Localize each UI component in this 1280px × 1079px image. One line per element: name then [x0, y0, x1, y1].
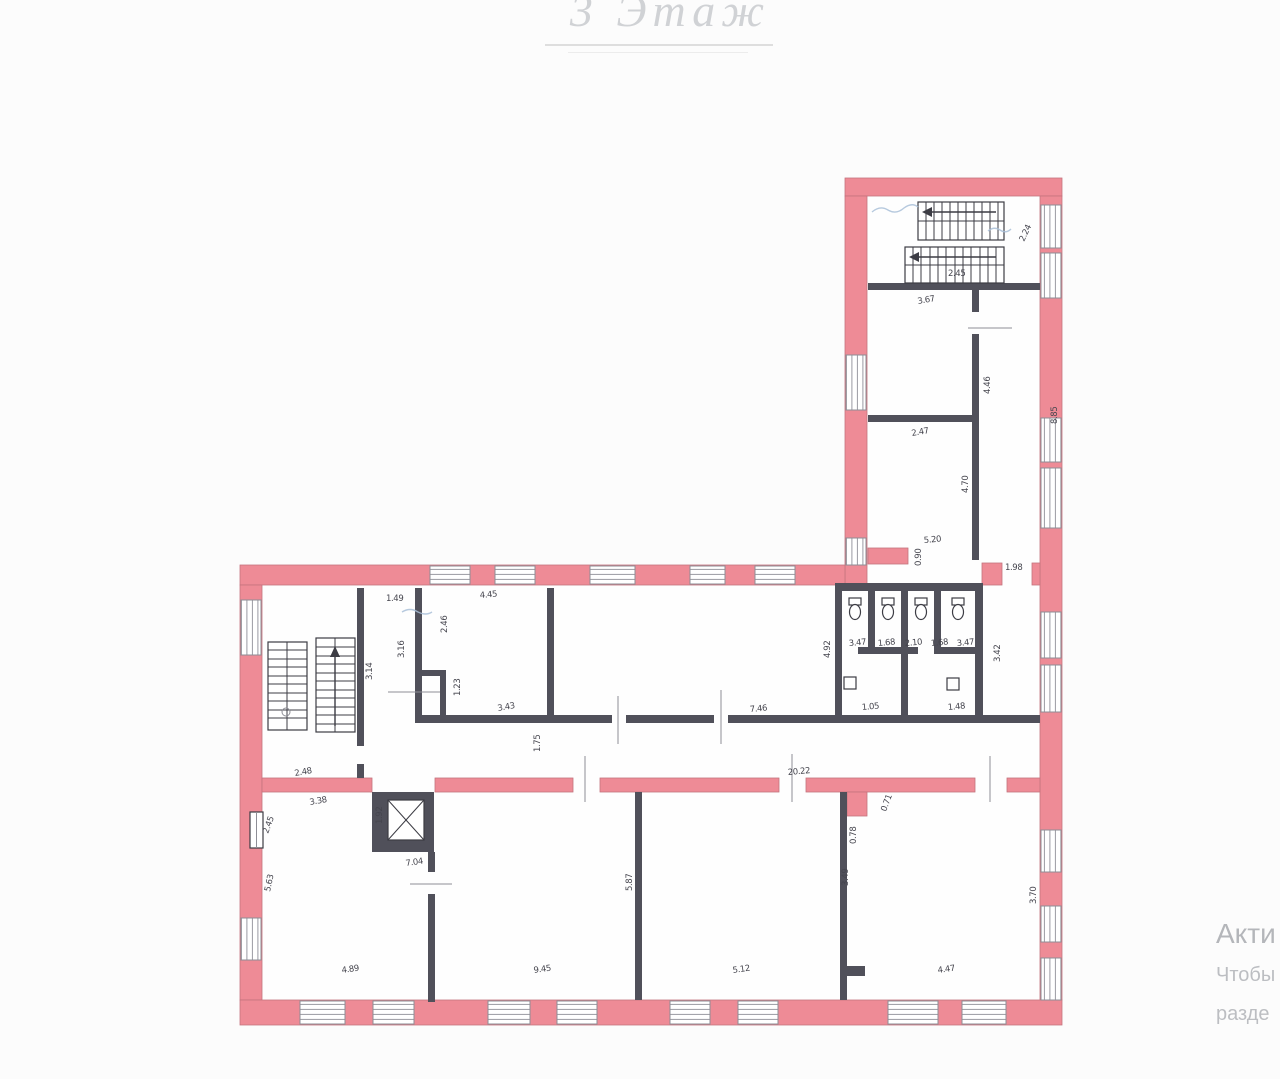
wing-partition	[972, 288, 979, 312]
dimension-label: 4.45	[479, 590, 497, 601]
toilet-icon	[952, 598, 964, 620]
toilet-block-wall	[835, 583, 983, 591]
window	[670, 1001, 710, 1024]
window	[1041, 468, 1061, 528]
dimension-label: 1.68	[877, 638, 895, 649]
window	[1041, 665, 1061, 712]
wall-stub	[1032, 563, 1040, 585]
dimension-label: 1.68	[930, 638, 948, 649]
window	[488, 1001, 530, 1024]
dimension-label: 4.92	[823, 641, 833, 658]
window	[241, 600, 261, 655]
dimension-label: 20.22	[787, 766, 810, 778]
dimension-label: 5.20	[923, 535, 941, 546]
window	[1041, 830, 1061, 872]
stair-hall-wall	[357, 764, 364, 778]
window	[300, 1001, 345, 1024]
dimension-label: 2.46	[440, 616, 450, 633]
dimension-label: 1.75	[533, 735, 543, 752]
dimension-label: 4.46	[983, 377, 993, 394]
wall-stub	[843, 966, 865, 976]
dimension-label: 3.49	[841, 869, 851, 886]
wall-stub	[982, 563, 1002, 585]
right-wall	[1040, 196, 1062, 1000]
window	[738, 1001, 778, 1024]
dimension-label: 7.46	[749, 704, 767, 715]
dimension-label: 1.49	[386, 594, 403, 604]
corridor-band	[1007, 778, 1040, 792]
dimension-label: 3.47	[848, 638, 866, 649]
dimension-label: 1.05	[861, 702, 879, 713]
window	[888, 1001, 938, 1024]
dimension-label: 3.42	[993, 645, 1003, 662]
dimension-label: 0.90	[914, 549, 924, 566]
room-wall	[428, 852, 435, 872]
corridor-wall	[626, 715, 714, 723]
dimension-label: 1.98	[1005, 563, 1022, 573]
dimension-label: 8.85	[1050, 407, 1060, 424]
corridor-band	[435, 778, 573, 792]
wall-pier	[847, 792, 867, 816]
corridor-band	[262, 778, 372, 792]
wall-stub	[868, 548, 908, 564]
dimension-label: 5.87	[625, 874, 635, 891]
room-wall	[428, 894, 435, 1002]
window	[1041, 958, 1061, 1000]
window	[1041, 612, 1061, 658]
hall-wall	[547, 588, 554, 715]
dimension-label: 3.47	[956, 638, 974, 649]
window	[373, 1001, 414, 1024]
dimension-label: 4.70	[961, 476, 971, 493]
floor-plan: 2.452.243.674.462.474.705.200.901.988.85…	[0, 0, 1280, 1079]
corridor-band	[806, 778, 975, 792]
toilet-icon	[915, 598, 927, 620]
stall-partition	[868, 591, 875, 647]
window	[241, 918, 261, 960]
dimension-label: 1.48	[947, 702, 965, 713]
toilet-icon	[882, 598, 894, 620]
sink-icon	[947, 678, 959, 690]
stair-hall-wall	[357, 588, 364, 746]
corridor-band	[600, 778, 779, 792]
dimension-label: 3.70	[1029, 887, 1039, 904]
closet-wall	[440, 670, 446, 722]
window	[846, 538, 866, 565]
dimension-label: 3.16	[397, 641, 407, 658]
corridor-wall	[728, 715, 1040, 723]
scanned-floor-plan-page: 3 Этаж	[0, 0, 1280, 1079]
window	[557, 1001, 597, 1024]
window	[755, 566, 795, 584]
window	[590, 566, 635, 584]
sink-icon	[844, 677, 856, 689]
room-wall	[635, 792, 642, 1000]
washroom-partition	[901, 654, 908, 722]
window	[1041, 906, 1061, 942]
dimension-label: 2.10	[904, 638, 922, 649]
window	[1041, 253, 1061, 298]
corridor-wall	[415, 715, 612, 723]
dimension-label: 0.78	[849, 827, 859, 844]
dimension-label: 3.14	[365, 663, 375, 680]
toilet-block-wall	[835, 591, 842, 722]
bottom-wall	[240, 1000, 1062, 1025]
window	[495, 566, 535, 584]
window	[962, 1001, 1006, 1024]
window	[846, 355, 866, 410]
toilet-icon	[849, 598, 861, 620]
room-wall	[415, 588, 422, 722]
dimension-label: 2.45	[948, 269, 965, 279]
dimension-label: 1.23	[453, 679, 463, 696]
window	[1041, 205, 1061, 248]
dimension-label: 1.92	[375, 807, 385, 824]
window	[690, 566, 725, 584]
wing-partition	[868, 415, 972, 422]
wing-partition	[972, 334, 979, 560]
wing-top-wall	[845, 178, 1062, 196]
middle-top-wall	[240, 565, 845, 585]
window	[430, 566, 470, 584]
stair-landing-wall	[868, 283, 1040, 290]
